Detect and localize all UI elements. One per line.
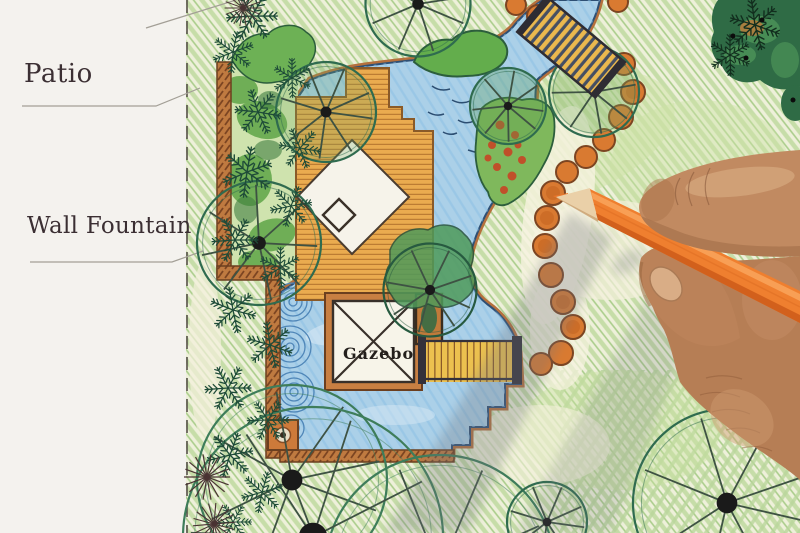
shrub xyxy=(386,225,475,308)
garden-plan-svg xyxy=(0,0,800,533)
patio-label: Patio xyxy=(24,59,93,89)
gazebo-label: Gazebo xyxy=(343,344,414,363)
wall-fountain-label: Wall Fountain xyxy=(27,213,192,239)
garden-plan-photo: Patio Wall Fountain Gazebo xyxy=(0,0,800,533)
